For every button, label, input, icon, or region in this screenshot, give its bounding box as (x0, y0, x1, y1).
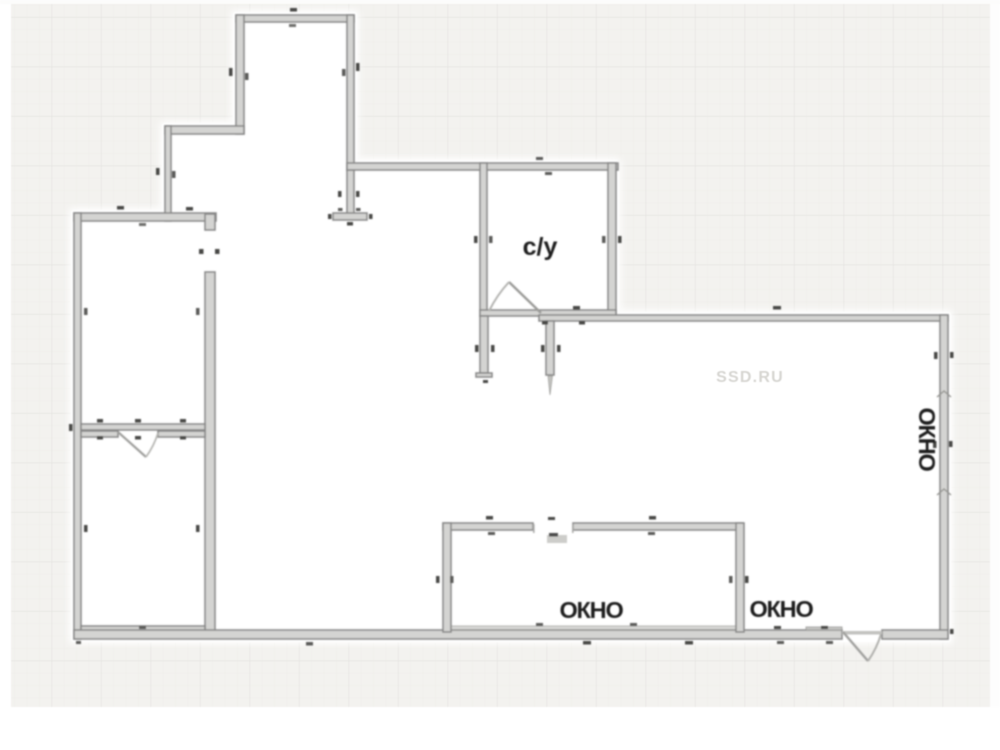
svg-text:с/у: с/у (523, 233, 558, 261)
svg-text:ОКНО: ОКНО (914, 407, 940, 471)
svg-text:SSD.RU: SSD.RU (716, 369, 784, 386)
svg-text:ОКНО: ОКНО (559, 597, 623, 623)
svg-text:ОКНО: ОКНО (749, 596, 813, 622)
